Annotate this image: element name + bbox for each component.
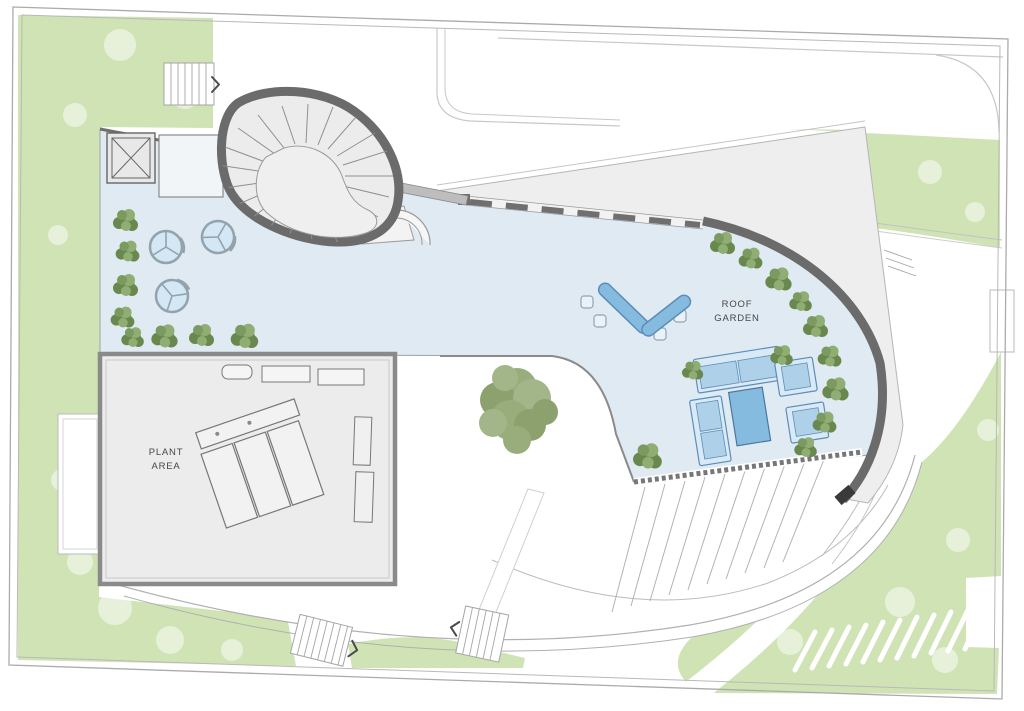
plant-area-label-line2: AREA [151, 461, 180, 472]
plant-unit [354, 472, 374, 523]
plant-area-label-line1: PLANT [149, 447, 184, 458]
lawn-blotch [932, 647, 958, 673]
roof-garden-label-line1: ROOF [722, 299, 753, 310]
lawn-blotch [965, 202, 985, 222]
border-notch [990, 290, 1014, 352]
lawn-blotch [946, 528, 970, 552]
lawn-blotch [104, 29, 136, 61]
lawn-blotch [221, 639, 243, 661]
plant-area-roof: PLANT AREA [100, 354, 395, 584]
fixture-unit [318, 369, 364, 385]
stair-top-left [164, 63, 219, 105]
roof-garden-label-line2: GARDEN [714, 313, 759, 324]
roof-hatch [159, 135, 223, 197]
armchair-cushion [781, 363, 810, 391]
ramp-band [476, 489, 544, 622]
plant-unit [353, 417, 372, 466]
lawn-blotch [63, 103, 87, 127]
left-lawn-planter [58, 414, 102, 554]
stair-direction-arrow-icon [449, 621, 459, 636]
sofa-cushion [696, 400, 722, 431]
lawn-blotch [98, 591, 132, 625]
roof-garden-site-plan: PLANT AREA [0, 0, 1024, 711]
stair-bottom-center [446, 604, 509, 662]
big-courtyard-tree [479, 365, 558, 454]
lawn-blotch [918, 160, 942, 184]
lawn-blotch [977, 419, 999, 441]
lawn-blotch [156, 626, 184, 654]
sofa-cushion [701, 430, 727, 459]
stool [594, 315, 606, 327]
stool [581, 296, 593, 308]
lawn-blotch [885, 587, 915, 617]
elevator-shaft [107, 133, 155, 183]
fixture-sink [222, 365, 252, 379]
fixture-unit [262, 366, 310, 382]
umbrella [150, 231, 184, 263]
lawn-blotch [48, 225, 68, 245]
